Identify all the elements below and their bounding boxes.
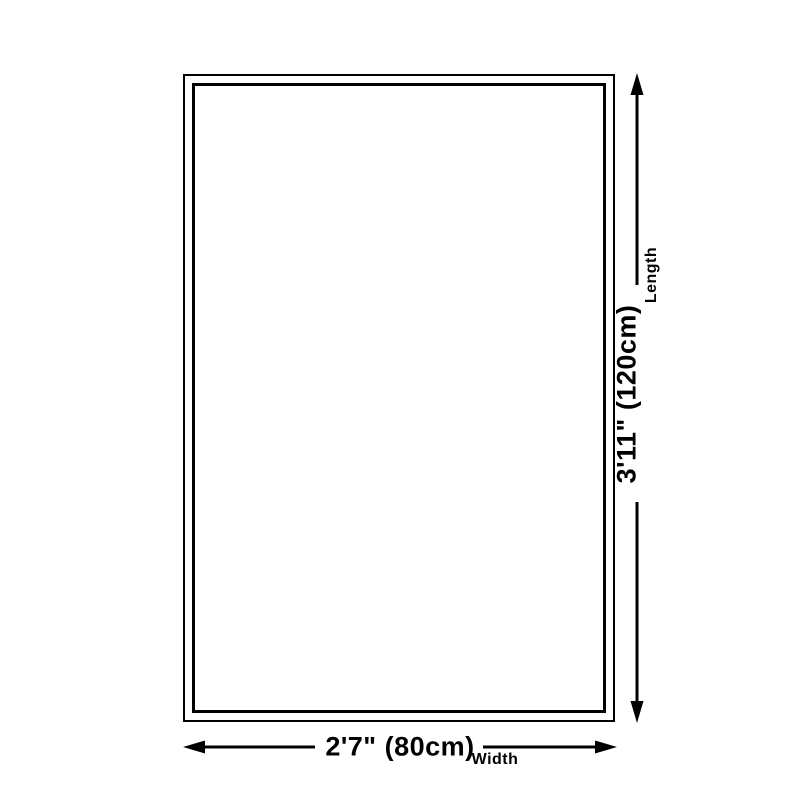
dimension-diagram: 3'11" (120cm) Length 2'7" (80cm) Width — [0, 0, 800, 800]
arrow-down-icon — [631, 701, 644, 723]
arrow-left-icon — [183, 741, 205, 754]
length-name-label: Length — [644, 247, 660, 303]
arrow-up-icon — [631, 73, 644, 95]
width-name-label: Width — [472, 752, 519, 768]
product-outline-outer — [183, 74, 615, 722]
product-outline-inner — [192, 83, 606, 713]
arrow-right-icon — [595, 741, 617, 754]
length-value-label: 3'11" (120cm) — [614, 305, 641, 484]
width-value-label: 2'7" (80cm) — [325, 734, 474, 761]
